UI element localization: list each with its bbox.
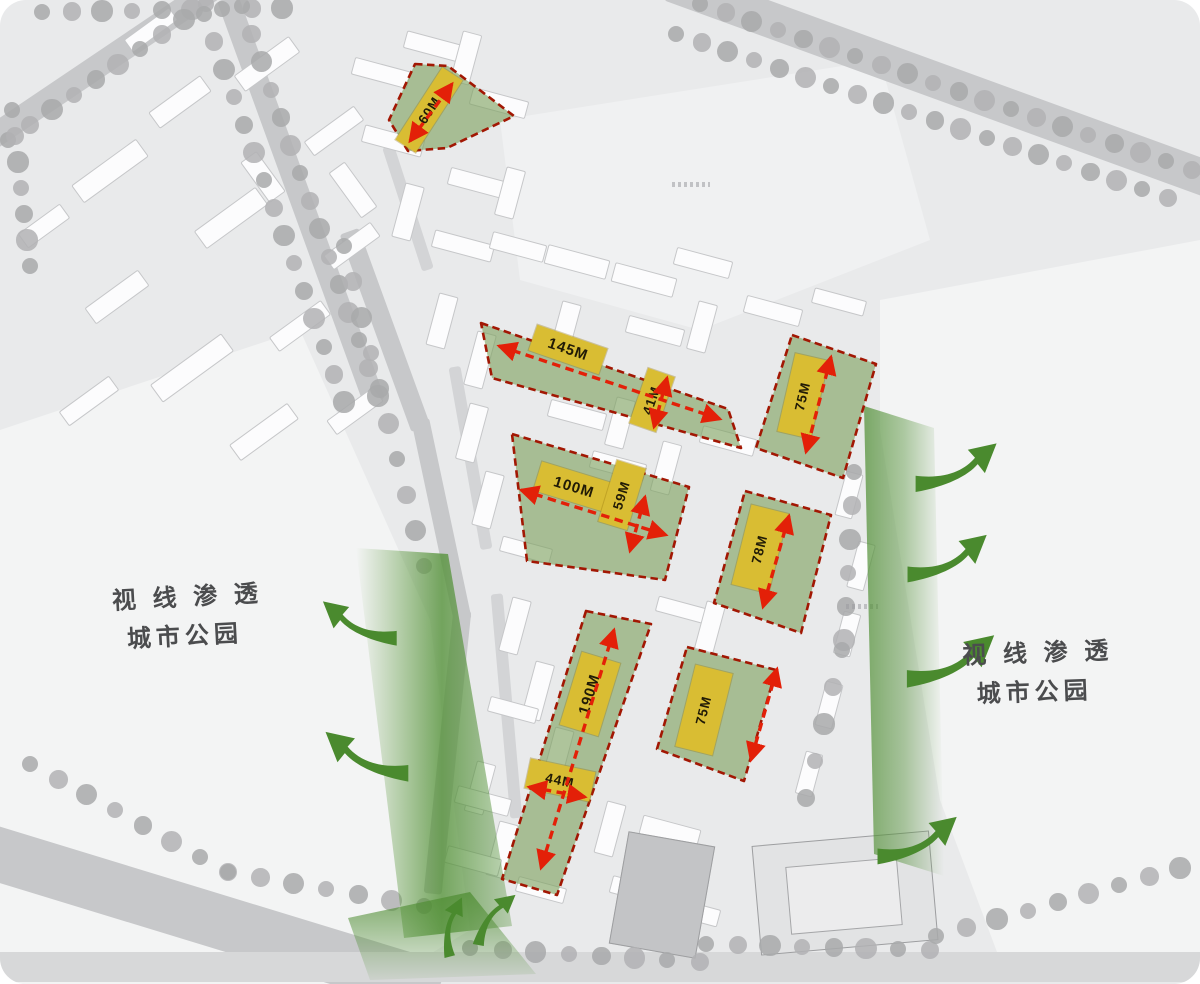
building — [269, 300, 331, 352]
tree — [729, 936, 748, 955]
tree — [295, 282, 314, 301]
tree — [1111, 877, 1127, 893]
tree — [1158, 153, 1174, 169]
tree — [847, 48, 863, 64]
tree — [367, 385, 388, 406]
tree — [1052, 116, 1073, 137]
tree — [359, 359, 378, 378]
tree — [1140, 867, 1159, 886]
tree — [405, 520, 426, 541]
building — [846, 540, 876, 591]
building — [323, 222, 381, 271]
tree — [273, 225, 294, 246]
road — [340, 228, 431, 432]
building — [431, 229, 496, 262]
tree — [280, 135, 301, 156]
tree — [957, 918, 976, 937]
building — [18, 203, 71, 248]
road — [423, 609, 471, 894]
tree — [153, 1, 172, 20]
tree — [770, 59, 789, 78]
building — [638, 815, 701, 850]
tree — [325, 365, 344, 384]
building-compound — [609, 831, 715, 959]
tree — [338, 302, 359, 323]
dimension-band-190m: 190M — [560, 652, 620, 736]
tree — [839, 529, 860, 550]
tree — [256, 172, 272, 188]
tree — [494, 941, 513, 960]
tree — [897, 63, 918, 84]
tree — [986, 908, 1007, 929]
city-park-text: 城市公园 — [126, 621, 265, 652]
tree — [124, 3, 140, 19]
tree — [181, 0, 202, 20]
building — [71, 139, 149, 204]
view-arrow-right-icon — [908, 535, 987, 583]
tree — [192, 849, 208, 865]
tree — [344, 272, 363, 291]
building — [194, 187, 268, 249]
illegible-map-note — [846, 604, 878, 609]
building — [547, 399, 608, 431]
building — [515, 876, 567, 904]
building — [454, 785, 513, 817]
tree — [316, 339, 332, 355]
building — [625, 315, 686, 347]
building — [609, 875, 668, 907]
tree — [717, 3, 736, 22]
dimension-arrow-75m-se — [751, 669, 777, 760]
tree — [759, 935, 780, 956]
road — [0, 817, 447, 984]
tree — [7, 151, 28, 172]
tree — [63, 2, 82, 21]
building — [463, 330, 497, 389]
building — [148, 75, 212, 129]
building — [485, 820, 519, 879]
tree — [824, 678, 843, 697]
view-gradient-bottom — [348, 892, 536, 980]
tree — [303, 308, 324, 329]
building — [494, 166, 526, 219]
building — [544, 244, 611, 280]
tree — [370, 379, 389, 398]
tree — [692, 0, 708, 12]
park-label-left: 视 线 渗 透 城市公园 — [111, 582, 265, 653]
building — [650, 440, 683, 495]
tree — [698, 936, 714, 952]
building — [499, 536, 553, 565]
tree — [173, 9, 194, 30]
tree — [416, 898, 432, 914]
building — [471, 470, 505, 529]
tree — [21, 116, 40, 135]
tree — [833, 629, 854, 650]
tree — [336, 238, 352, 254]
building — [326, 387, 384, 436]
tree — [292, 165, 308, 181]
road — [382, 144, 434, 271]
tree — [196, 6, 212, 22]
tree — [0, 132, 16, 148]
tree — [333, 391, 354, 412]
tree — [235, 116, 254, 135]
tree — [349, 885, 368, 904]
tree — [741, 11, 762, 32]
tree — [979, 130, 995, 146]
tree — [242, 25, 261, 44]
tree — [22, 756, 38, 772]
tree — [13, 180, 29, 196]
tree — [561, 946, 577, 962]
tree — [659, 952, 675, 968]
building — [814, 680, 843, 729]
tree — [205, 32, 224, 51]
view-arrow-right-icon — [878, 817, 957, 865]
illegible-map-note — [672, 182, 710, 187]
park-area-right — [880, 240, 1200, 960]
tree — [49, 770, 68, 789]
dimension-band-59m: 59M — [598, 460, 645, 530]
park-label-right: 视 线 渗 透 城市公园 — [962, 639, 1115, 707]
road — [217, 0, 385, 406]
tree — [6, 127, 25, 146]
tree — [974, 90, 995, 111]
tree — [1080, 127, 1096, 143]
site-plan-canvas: 60M 145M 41M 75M 100M 59M 78M 190M 44M 7… — [0, 0, 1200, 984]
tree — [872, 56, 891, 75]
tree — [794, 939, 810, 955]
building — [351, 57, 412, 89]
building-compound-court — [785, 857, 903, 935]
tree — [825, 938, 844, 957]
tree — [416, 558, 432, 574]
road — [448, 366, 492, 550]
tree — [397, 486, 416, 505]
view-arrow-left-icon — [326, 732, 409, 782]
tree — [134, 816, 153, 835]
tree — [819, 37, 840, 58]
tree — [668, 26, 684, 42]
building — [447, 167, 508, 199]
building — [84, 270, 149, 325]
building — [240, 151, 286, 203]
building — [489, 231, 548, 263]
building-compound — [752, 830, 939, 955]
dimension-band-145m: 145M — [529, 325, 608, 375]
tree — [1003, 137, 1022, 156]
tree — [389, 451, 405, 467]
tree — [1169, 857, 1190, 878]
tree — [283, 873, 304, 894]
building — [59, 375, 120, 426]
open-area-top — [500, 60, 930, 330]
tree — [243, 142, 264, 163]
tree — [901, 104, 917, 120]
view-gradient-left — [356, 548, 512, 938]
tree — [286, 255, 302, 271]
tree — [770, 22, 786, 38]
tree — [87, 70, 106, 89]
tree — [840, 565, 856, 581]
tree — [91, 0, 112, 21]
building — [743, 295, 804, 327]
tree — [928, 928, 944, 944]
building — [234, 36, 301, 92]
tree — [309, 218, 330, 239]
tree — [301, 192, 320, 211]
tree — [890, 941, 906, 957]
road — [490, 593, 522, 818]
tree — [214, 1, 230, 17]
building — [498, 596, 532, 655]
tree — [925, 75, 941, 91]
tree — [1183, 161, 1200, 180]
tree — [107, 54, 128, 75]
tree — [926, 111, 945, 130]
tree — [855, 938, 876, 959]
tree — [1028, 144, 1049, 165]
dimension-band-60m: 60M — [396, 67, 463, 152]
tree — [251, 51, 272, 72]
sight-line-text: 视 线 渗 透 — [962, 639, 1114, 668]
building — [444, 845, 503, 877]
building — [521, 660, 555, 721]
tree — [213, 59, 234, 80]
tree — [198, 0, 214, 12]
tree — [107, 802, 123, 818]
tree — [243, 0, 262, 18]
tree — [1056, 155, 1072, 171]
building — [833, 610, 862, 657]
building — [469, 87, 530, 119]
tree — [226, 89, 242, 105]
tree — [797, 789, 816, 808]
tree — [1105, 134, 1124, 153]
road — [664, 0, 1200, 206]
tree — [378, 413, 399, 434]
sight-line-text: 视 线 渗 透 — [111, 582, 263, 614]
tree — [873, 92, 894, 113]
tree — [794, 30, 813, 49]
view-arrow-left-icon — [323, 601, 397, 645]
tree — [161, 831, 182, 852]
building — [403, 30, 468, 63]
tree — [321, 249, 337, 265]
tree — [22, 258, 38, 274]
tree — [834, 642, 850, 658]
building — [593, 800, 626, 857]
tree — [4, 102, 20, 118]
tree — [807, 753, 823, 769]
tree — [921, 941, 940, 960]
tree — [318, 881, 334, 897]
view-arrow-up-icon — [473, 889, 516, 950]
tree — [132, 41, 148, 57]
building — [150, 333, 234, 403]
tree — [66, 87, 82, 103]
building — [795, 750, 824, 797]
tree — [15, 205, 34, 224]
tree — [1027, 108, 1046, 127]
tree — [813, 713, 834, 734]
tree — [153, 25, 172, 44]
tree — [950, 118, 971, 139]
tree — [525, 941, 546, 962]
tree — [1130, 142, 1151, 163]
tree — [330, 275, 349, 294]
tree — [1078, 883, 1099, 904]
tree — [823, 78, 839, 94]
tree — [363, 345, 379, 361]
building — [229, 403, 299, 462]
tree — [846, 464, 862, 480]
tree — [272, 108, 291, 127]
tree — [717, 41, 738, 62]
tree — [220, 864, 236, 880]
building — [655, 596, 709, 625]
building — [673, 247, 734, 279]
dimension-band-78m: 78M — [732, 505, 789, 594]
building — [834, 470, 863, 519]
road — [411, 418, 471, 622]
city-park-text: 城市公园 — [976, 678, 1115, 707]
tree — [1106, 170, 1127, 191]
tree — [219, 863, 238, 882]
dimension-arrow-145m — [499, 346, 720, 419]
tree — [351, 332, 367, 348]
building — [425, 292, 458, 349]
tree — [263, 82, 279, 98]
building — [487, 696, 539, 724]
building — [611, 262, 678, 298]
view-gradient-right — [864, 406, 944, 876]
tree — [41, 99, 62, 120]
tree — [76, 784, 97, 805]
tree — [1081, 163, 1100, 182]
tree — [843, 496, 862, 515]
building — [304, 105, 365, 156]
parcel-south-strip — [502, 611, 651, 895]
tree — [1049, 893, 1068, 912]
tree — [950, 82, 969, 101]
dimension-band-75m-ne: 75M — [777, 353, 828, 439]
tree — [1020, 903, 1036, 919]
tree — [691, 953, 710, 972]
tree — [271, 0, 292, 19]
dimension-band-44m: 44M — [525, 758, 596, 801]
building — [391, 182, 425, 241]
tree — [381, 890, 402, 911]
tree — [693, 33, 712, 52]
tree — [624, 947, 645, 968]
parcel-north-band — [481, 323, 741, 448]
building — [811, 287, 867, 316]
tree — [592, 947, 611, 966]
tree — [265, 199, 284, 218]
tree — [795, 67, 816, 88]
tree — [1003, 101, 1019, 117]
view-arrow-right-icon — [916, 443, 997, 492]
tree — [1159, 189, 1178, 208]
building — [694, 600, 726, 653]
tree — [234, 0, 250, 14]
building — [699, 425, 758, 457]
dimension-band-75m-se: 75M — [675, 665, 732, 756]
tree — [462, 940, 478, 956]
view-arrow-up-icon — [431, 898, 476, 959]
tree — [746, 52, 762, 68]
tree — [1134, 181, 1150, 197]
road — [0, 0, 252, 167]
tree — [16, 229, 37, 250]
building — [686, 300, 718, 353]
building — [328, 161, 377, 218]
road — [0, 952, 1200, 982]
building — [464, 760, 497, 815]
building — [124, 7, 179, 53]
tree — [251, 868, 270, 887]
tree — [351, 307, 372, 328]
tree — [848, 85, 867, 104]
building — [455, 402, 489, 463]
tree — [34, 4, 50, 20]
dimension-band-41m: 41M — [629, 368, 674, 432]
building — [659, 895, 722, 928]
park-area-left — [0, 330, 470, 984]
